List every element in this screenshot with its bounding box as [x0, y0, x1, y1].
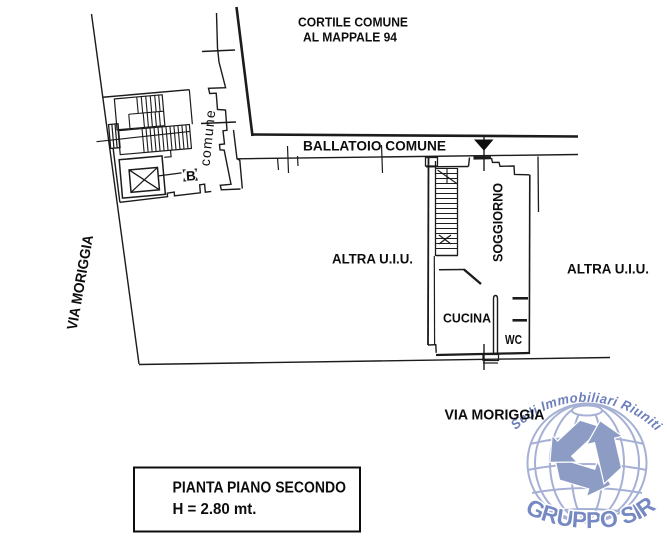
svg-text:SOGGIORNO: SOGGIORNO: [490, 183, 506, 262]
svg-text:VIA MORIGGIA: VIA MORIGGIA: [445, 407, 545, 424]
svg-text:ALTRA U.I.U.: ALTRA U.I.U.: [567, 262, 649, 277]
svg-text:CUCINA: CUCINA: [443, 311, 492, 326]
svg-text:BALLATOIO COMUNE: BALLATOIO COMUNE: [303, 139, 446, 154]
svg-text:AL MAPPALE 94: AL MAPPALE 94: [303, 30, 398, 45]
svg-text:GRUPPO SIR: GRUPPO SIR: [522, 491, 660, 533]
svg-text:CORTILE COMUNE: CORTILE COMUNE: [298, 15, 408, 30]
svg-text:PIANTA PIANO SECONDO: PIANTA PIANO SECONDO: [173, 480, 347, 497]
svg-text:VIA MORIGGIA: VIA MORIGGIA: [65, 233, 98, 331]
svg-text:B: B: [185, 168, 196, 184]
svg-text:comune: comune: [197, 109, 219, 167]
svg-text:WC: WC: [505, 333, 522, 347]
svg-text:H = 2.80 mt.: H = 2.80 mt.: [173, 501, 257, 518]
svg-text:ALTRA U.I.U.: ALTRA U.I.U.: [332, 252, 413, 267]
